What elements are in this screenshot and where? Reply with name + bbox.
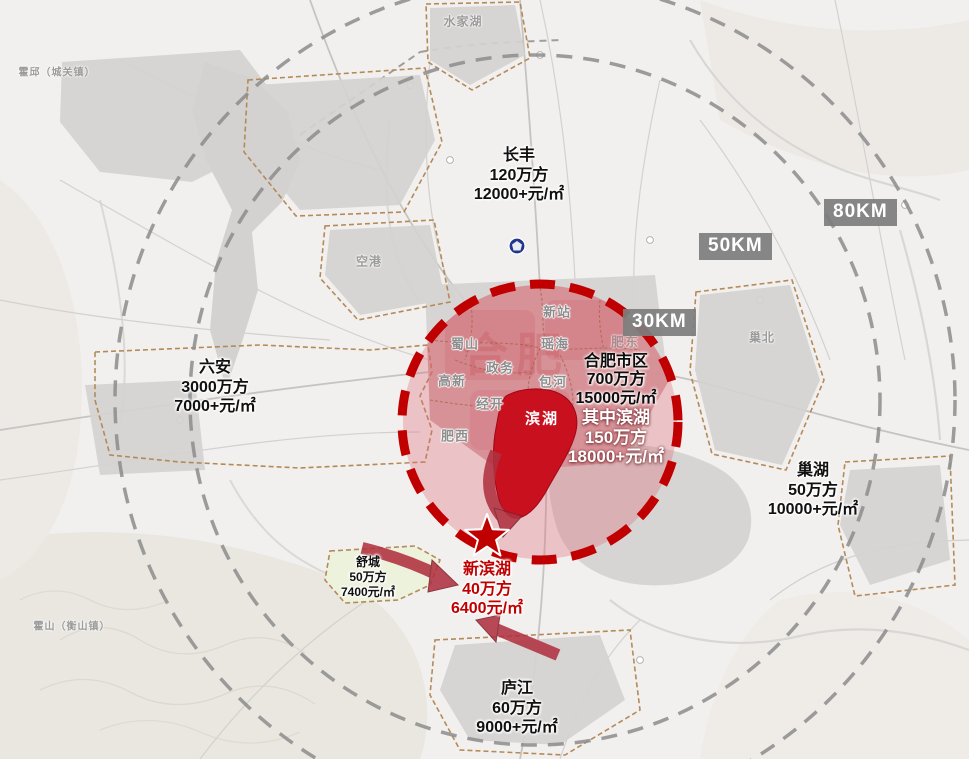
region-block-lujiang: 庐江 60万方 9000+元/㎡: [476, 679, 557, 738]
region-price: 10000+元/㎡: [768, 500, 858, 520]
district-label-gaoxin: 高新: [438, 371, 466, 390]
district-label-yaohai: 瑶海: [541, 334, 569, 353]
city-center-sub-name: 其中滨湖: [568, 408, 664, 428]
city-center-sub-price: 18000+元/㎡: [568, 447, 664, 467]
district-label-binhu: 滨湖: [525, 408, 559, 429]
map-label-chaobei: 巢北: [749, 329, 775, 346]
map-label-huoqiu: 霍邱（城关镇）: [19, 64, 96, 79]
ring-badge-30km: 30KM: [623, 309, 696, 336]
region-name: 巢湖: [768, 461, 858, 481]
region-price: 6400元/㎡: [451, 599, 523, 619]
region-block-chaohu: 巢湖 50万方 10000+元/㎡: [768, 461, 858, 520]
region-volume: 40万方: [451, 580, 523, 600]
ring-badge-50km: 50KM: [699, 233, 772, 260]
map-label-shuijiahu: 水家湖: [443, 13, 482, 30]
region-volume: 50万方: [768, 481, 858, 501]
landmark-icon: [509, 238, 525, 254]
city-center-sub-volume: 150万方: [568, 428, 664, 448]
region-volume: 50万方: [341, 570, 395, 585]
region-block-luan: 六安 3000万方 7000+元/㎡: [174, 358, 255, 417]
region-block-shucheng: 舒城 50万方 7400元/㎡: [341, 555, 395, 600]
region-block-changfeng: 长丰 120万方 12000+元/㎡: [474, 146, 564, 205]
region-price: 7000+元/㎡: [174, 397, 255, 417]
district-label-shushan: 蜀山: [451, 334, 479, 353]
region-name: 长丰: [474, 146, 564, 166]
region-name: 舒城: [341, 555, 395, 570]
region-price: 9000+元/㎡: [476, 718, 557, 738]
district-label-zhengwu: 政务: [486, 358, 514, 377]
hefei-market-map: 合肥 水家湖 空港 巢北 霍邱（城关镇） 霍山（衡山镇） 新站 瑶海 蜀山 政务…: [0, 0, 969, 759]
city-center-volume: 700万方: [568, 371, 664, 389]
region-name: 庐江: [476, 679, 557, 699]
region-name: 六安: [174, 358, 255, 378]
city-center-name: 合肥市区: [568, 353, 664, 371]
region-price: 7400元/㎡: [341, 585, 395, 600]
map-label-huoshan: 霍山（衡山镇）: [34, 618, 111, 633]
region-block-xinbinhu: 新滨湖 40万方 6400元/㎡: [451, 560, 523, 619]
region-volume: 3000万方: [174, 378, 255, 398]
district-label-jingkai: 经开: [476, 394, 504, 413]
district-label-baohe: 包河: [539, 372, 567, 391]
city-center-price: 15000元/㎡: [568, 390, 664, 408]
city-center-block: 合肥市区 700万方 15000元/㎡ 其中滨湖 150万方 18000+元/㎡: [568, 353, 664, 467]
region-price: 12000+元/㎡: [474, 185, 564, 205]
map-label-konggang: 空港: [356, 253, 382, 270]
district-label-xinzhan: 新站: [543, 302, 571, 321]
region-name: 新滨湖: [451, 560, 523, 580]
ring-badge-80km: 80KM: [824, 199, 897, 226]
district-label-feixi: 肥西: [441, 426, 469, 445]
region-volume: 120万方: [474, 166, 564, 186]
region-volume: 60万方: [476, 699, 557, 719]
